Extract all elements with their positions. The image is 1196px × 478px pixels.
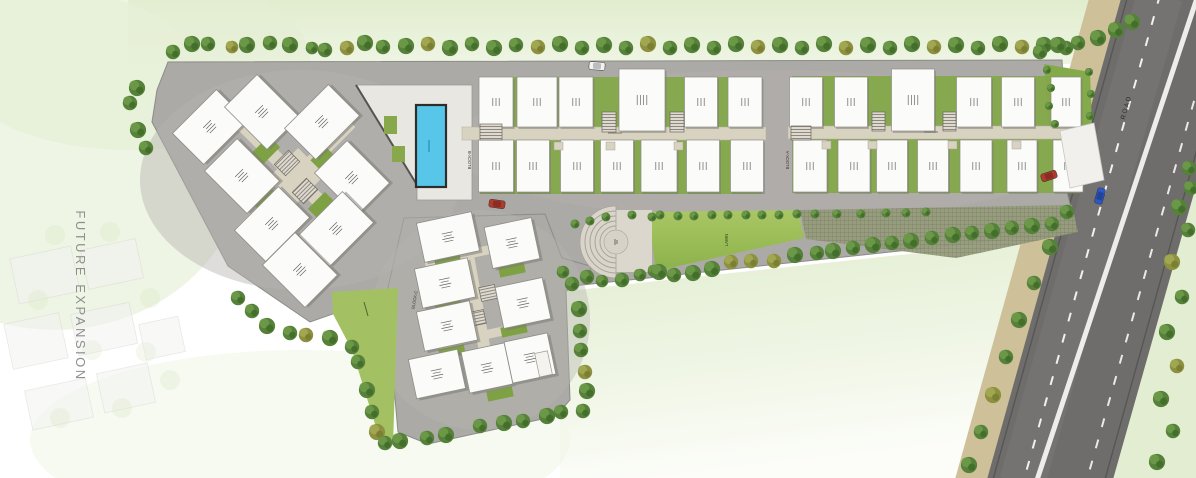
tree-canopy-shade [712,214,716,218]
tree-icon [571,301,587,317]
tree-canopy-shade [493,47,500,54]
tree-canopy-shade [1051,87,1055,91]
tree-icon [231,291,245,305]
tree-icon [596,275,609,288]
tree-icon [1050,37,1066,53]
tree-icon [1181,223,1195,237]
tree-icon [767,254,781,268]
tree-icon [656,211,665,220]
tree-canopy-shade [582,410,588,416]
tree-canopy-shade [1089,71,1093,75]
unit-building [892,69,935,131]
tree-canopy-shade [1188,167,1194,173]
tree-canopy-shade [980,431,986,437]
corridor-landing [674,142,683,150]
tree-canopy-shade [586,390,593,397]
tree-canopy-shade [639,274,645,280]
tree-icon [1015,40,1029,54]
tree-icon [846,241,860,255]
ghost-tree-icon [28,290,48,310]
tree-icon [816,36,832,52]
tree-icon [674,212,683,221]
tree-icon [925,231,939,245]
tree-canopy-shade [977,47,983,53]
tree-icon [129,80,145,96]
tree-canopy-shade [735,43,742,50]
corridor-landing [948,141,957,149]
tree-icon [130,122,146,138]
tree-icon [1124,14,1140,30]
tree-icon [839,41,853,55]
tree-canopy-shade [730,261,736,267]
tree-canopy-shade [581,47,587,53]
tree-canopy-shade [207,43,213,49]
tree-icon [1090,30,1106,46]
tree-canopy-shade [692,272,699,279]
tree-icon [903,233,919,249]
tree-icon [965,226,979,240]
tree-canopy-shade [580,349,586,355]
tree-icon [1071,36,1085,50]
ghost-tree-icon [112,398,132,418]
tree-canopy-shade [1021,46,1027,52]
tree-icon [442,40,458,56]
corridor-landing [868,141,877,149]
tree-canopy-shade [426,437,432,443]
tree-icon [882,209,891,218]
site-master-plan: ROAD LAWN OPEN AREA BLOCK-B BLOCK- [0,0,1196,478]
ghost-tree-icon [45,225,65,245]
tree-icon [1164,254,1180,270]
tree-canopy-shade [1176,365,1182,371]
tree-canopy-shade [660,214,664,218]
tree-canopy-shade [382,46,388,52]
tower-building [461,343,513,393]
pool-planter [392,146,405,162]
tree-icon [742,211,751,220]
tree-icon [1005,221,1019,235]
tree-icon [1027,276,1041,290]
tree-canopy-shade [1097,37,1104,44]
tree-icon [865,237,881,253]
tree-icon [708,211,717,220]
block-b-label: BLOCK-B [467,151,472,170]
tree-icon [1171,199,1187,215]
tree-canopy-shade [1031,225,1038,232]
tree-canopy-shade [1181,296,1187,302]
tree-canopy-shade [590,220,594,224]
tree-canopy-shade [971,232,977,238]
tree-canopy-shade [522,420,528,426]
tree-canopy-shade [571,283,577,289]
tree-icon [1108,22,1124,38]
tree-icon [619,41,633,55]
tree-canopy-shade [266,325,273,332]
tree-canopy-shade [694,215,698,219]
tree-icon [775,211,784,220]
tree-canopy-shade [968,464,975,471]
tree-icon [1086,112,1094,120]
tree-canopy-shade [191,43,198,50]
tree-icon [927,40,941,54]
tree-icon [999,350,1013,364]
tree-canopy-shade [891,242,897,248]
tree-icon [793,210,802,219]
tree-canopy-shade [952,234,959,241]
tree-canopy-shade [678,215,682,219]
tree-icon [1182,161,1196,175]
ghost-tree-icon [100,222,120,242]
tree-canopy-shade [711,268,718,275]
corridor-landing [554,142,563,150]
tree-icon [663,41,677,55]
stair-core [872,112,885,131]
tree-icon [685,265,701,281]
tree-icon [1159,324,1175,340]
tree-canopy-shade [1049,246,1056,253]
tree-canopy-shade [515,44,521,50]
tree-canopy-shade [1018,319,1025,326]
tree-canopy-shade [364,42,371,49]
tree-icon [883,41,897,55]
tree-canopy-shade [371,411,377,417]
tree-canopy-shade [652,216,656,220]
tree-canopy-shade [503,422,510,429]
tree-canopy-shade [926,211,930,215]
tree-canopy-shade [816,252,822,258]
tree-canopy-shade [399,440,406,447]
tree-icon [351,355,365,369]
tree-canopy-shade [647,43,654,50]
tree-icon [322,330,338,346]
tree-icon [615,273,629,287]
tree-icon [359,382,375,398]
tree-canopy-shade [237,297,243,303]
swimming-pool [416,105,446,187]
stair-core [943,112,956,131]
tree-canopy-shade [757,46,763,52]
tree-icon [473,419,487,433]
tree-canopy-shade [1156,461,1163,468]
tree-canopy-shade [560,411,566,417]
tree-canopy-shade [351,346,357,352]
tree-icon [554,405,568,419]
tree-canopy-shade [999,43,1006,50]
tree-canopy-shade [269,42,275,48]
tree-icon [486,40,502,56]
car-white-icon [589,61,606,70]
tree-canopy-shade [911,43,918,50]
tree-canopy-shade [1077,42,1083,48]
tree-icon [123,96,137,110]
tree-icon [751,40,765,54]
tree-icon [640,36,656,52]
tree-canopy-shade [750,260,756,266]
tree-icon [1033,45,1047,59]
tree-icon [398,38,414,54]
tree-canopy-shade [136,87,143,94]
tree-canopy-shade [1178,206,1185,213]
amphitheater-stage [604,230,628,254]
tree-canopy-shade [1047,69,1051,73]
tree-icon [579,383,595,399]
stair-core [791,126,811,140]
tree-canopy-shade [931,237,937,243]
tree-icon [904,36,920,52]
tree-canopy-shade [1066,211,1072,217]
tree-icon [580,270,594,284]
tree-icon [728,36,744,52]
tree-icon [811,210,820,219]
tree-canopy-shade [852,247,858,253]
tree-icon [634,269,647,282]
tree-icon [1042,239,1058,255]
tree-canopy-shade [384,442,390,448]
tree-icon [1047,84,1055,92]
tree-canopy-shade [329,337,336,344]
tree-icon [992,36,1008,52]
tree-icon [885,236,899,250]
tree-canopy-shade [872,244,879,251]
pool-planter [384,116,397,134]
corridor-landing [822,141,831,149]
tree-icon [421,37,435,51]
tree-canopy-shade [145,147,151,153]
tree-icon [948,37,964,53]
tree-icon [1024,218,1040,234]
tree-icon [690,212,699,221]
tree-icon [810,246,824,260]
tree-icon [704,261,720,277]
tree-icon [239,37,255,53]
tree-icon [318,43,332,57]
tree-icon [357,35,373,51]
tree-canopy-shade [886,212,890,216]
tree-icon [1045,102,1053,110]
car-roof [593,63,601,70]
tree-canopy-shade [311,47,317,53]
tree-icon [648,213,657,222]
tree-canopy-shade [867,44,874,51]
tree-icon [1085,68,1093,76]
tree-canopy-shade [546,415,553,422]
tree-canopy-shade [584,371,590,377]
tree-canopy-shade [762,214,766,218]
tree-icon [922,208,931,217]
tree-canopy-shade [1166,331,1173,338]
tree-canopy-shade [992,394,999,401]
tree-canopy-shade [1172,430,1178,436]
tree-canopy-shade [815,213,819,217]
tree-icon [345,340,359,354]
tree-icon [557,266,570,279]
unit-building [619,69,665,131]
tree-canopy-shade [559,43,566,50]
tree-icon [724,211,733,220]
tree-canopy-shade [129,102,135,108]
tree-canopy-shade [586,276,592,282]
south-core [479,284,498,301]
tree-icon [1153,391,1169,407]
tree-icon [574,343,588,357]
tree-icon [573,324,587,338]
tree-icon [724,255,738,269]
tree-canopy-shade [794,254,801,261]
tree-canopy-shade [357,361,363,367]
tree-canopy-shade [427,43,433,49]
tree-icon [420,431,434,445]
tree-canopy-shade [1011,227,1017,233]
tree-canopy-shade [289,332,295,338]
tree-canopy-shade [837,213,841,217]
tree-icon [707,41,721,55]
tree-icon [833,210,842,219]
tree-canopy-shade [346,47,352,53]
tree-canopy-shade [471,43,477,49]
tree-canopy-shade [1065,47,1071,53]
tree-icon [576,404,590,418]
future-expansion-label: FUTURE EXPANSION [73,210,88,381]
tree-canopy-shade [1051,223,1057,229]
tree-canopy-shade [861,213,865,217]
tree-icon [578,365,592,379]
tree-icon [902,209,911,218]
tree-canopy-shade [537,46,543,52]
tree-canopy-shade [797,213,801,217]
tree-canopy-shade [658,271,665,278]
tree-icon [263,36,277,50]
tree-icon [985,387,1001,403]
tree-canopy-shade [713,47,719,53]
tree-icon [1051,120,1059,128]
tree-icon [340,41,354,55]
ghost-tree-icon [160,370,180,390]
tree-canopy-shade [1160,398,1167,405]
tree-icon [651,264,667,280]
tree-icon [758,211,767,220]
tree-canopy-shade [172,51,178,57]
tree-icon [201,37,215,51]
tree-canopy-shade [1055,123,1059,127]
tree-icon [860,37,876,53]
tree-icon [365,405,379,419]
tree-icon [1045,217,1059,231]
tree-canopy-shade [621,279,627,285]
tree-icon [245,304,259,318]
tree-icon [378,436,392,450]
tree-icon [628,211,637,220]
tree-icon [516,414,530,428]
tree-canopy-shade [673,274,679,280]
lawn-label: LAWN [724,234,729,247]
tree-canopy-shade [746,214,750,218]
corridor-landing [1012,141,1021,149]
tree-canopy-shade [1131,21,1138,28]
tree-icon [571,220,580,229]
tree-canopy-shade [1091,93,1095,97]
tree-canopy-shade [603,44,610,51]
ghost-tree-icon [140,288,160,308]
tree-icon [1060,205,1074,219]
tree-canopy-shade [1049,105,1053,109]
tree-icon [984,223,1000,239]
tree-canopy-shade [801,47,807,53]
tree-canopy-shade [1057,44,1064,51]
tree-icon [787,247,803,263]
car-roof [493,200,502,207]
corridor-landing [606,142,615,150]
tree-icon [586,217,595,226]
tree-icon [465,37,479,51]
tree-canopy-shade [625,47,631,53]
tree-canopy-shade [1039,51,1045,57]
tree-canopy-shade [823,43,830,50]
tree-canopy-shade [1090,115,1094,119]
tree-icon [509,38,523,52]
tree-icon [299,328,313,342]
tree-icon [438,427,454,443]
tree-icon [795,41,809,55]
tree-canopy-shade [1171,261,1178,268]
tree-canopy-shade [289,44,296,51]
tree-canopy-shade [955,44,962,51]
tree-canopy-shade [1033,282,1039,288]
tree-canopy-shade [779,214,783,218]
tree-canopy-shade [669,47,675,53]
stair-core [480,124,502,140]
tree-icon [1011,312,1027,328]
tree-icon [1043,66,1051,74]
tree-canopy-shade [773,260,779,266]
tree-icon [1175,290,1189,304]
tree-icon [1166,424,1180,438]
tree-icon [684,37,700,53]
tree-canopy-shade [575,223,579,227]
tree-canopy-shade [601,280,607,286]
site-plan-svg: ROAD LAWN OPEN AREA BLOCK-B BLOCK- [0,0,1196,478]
tree-icon [772,37,788,53]
tree-icon [575,41,589,55]
tree-icon [226,41,239,54]
tree-icon [539,408,555,424]
tree-icon [496,415,512,431]
tree-icon [1149,454,1165,470]
tree-canopy-shade [405,45,412,52]
tree-canopy-shade [606,216,610,220]
tree-canopy-shade [1115,29,1122,36]
tree-icon [283,326,297,340]
tree-canopy-shade [324,49,330,55]
tree-canopy-shade [1187,229,1193,235]
tree-icon [857,210,866,219]
tree-icon [184,36,200,52]
tree-canopy-shade [889,47,895,53]
stair-core [602,112,616,132]
tree-canopy-shade [728,214,732,218]
tree-canopy-shade [578,308,585,315]
tree-icon [1170,359,1184,373]
tree-canopy-shade [479,425,485,431]
ghost-tree-icon [136,342,156,362]
tree-canopy-shade [1005,356,1011,362]
ghost-tree-icon [50,408,70,428]
tree-icon [945,227,961,243]
tree-icon [744,254,758,268]
tree-icon [392,433,408,449]
tree-icon [166,45,180,59]
tree-canopy-shade [779,44,786,51]
tree-icon [552,36,568,52]
